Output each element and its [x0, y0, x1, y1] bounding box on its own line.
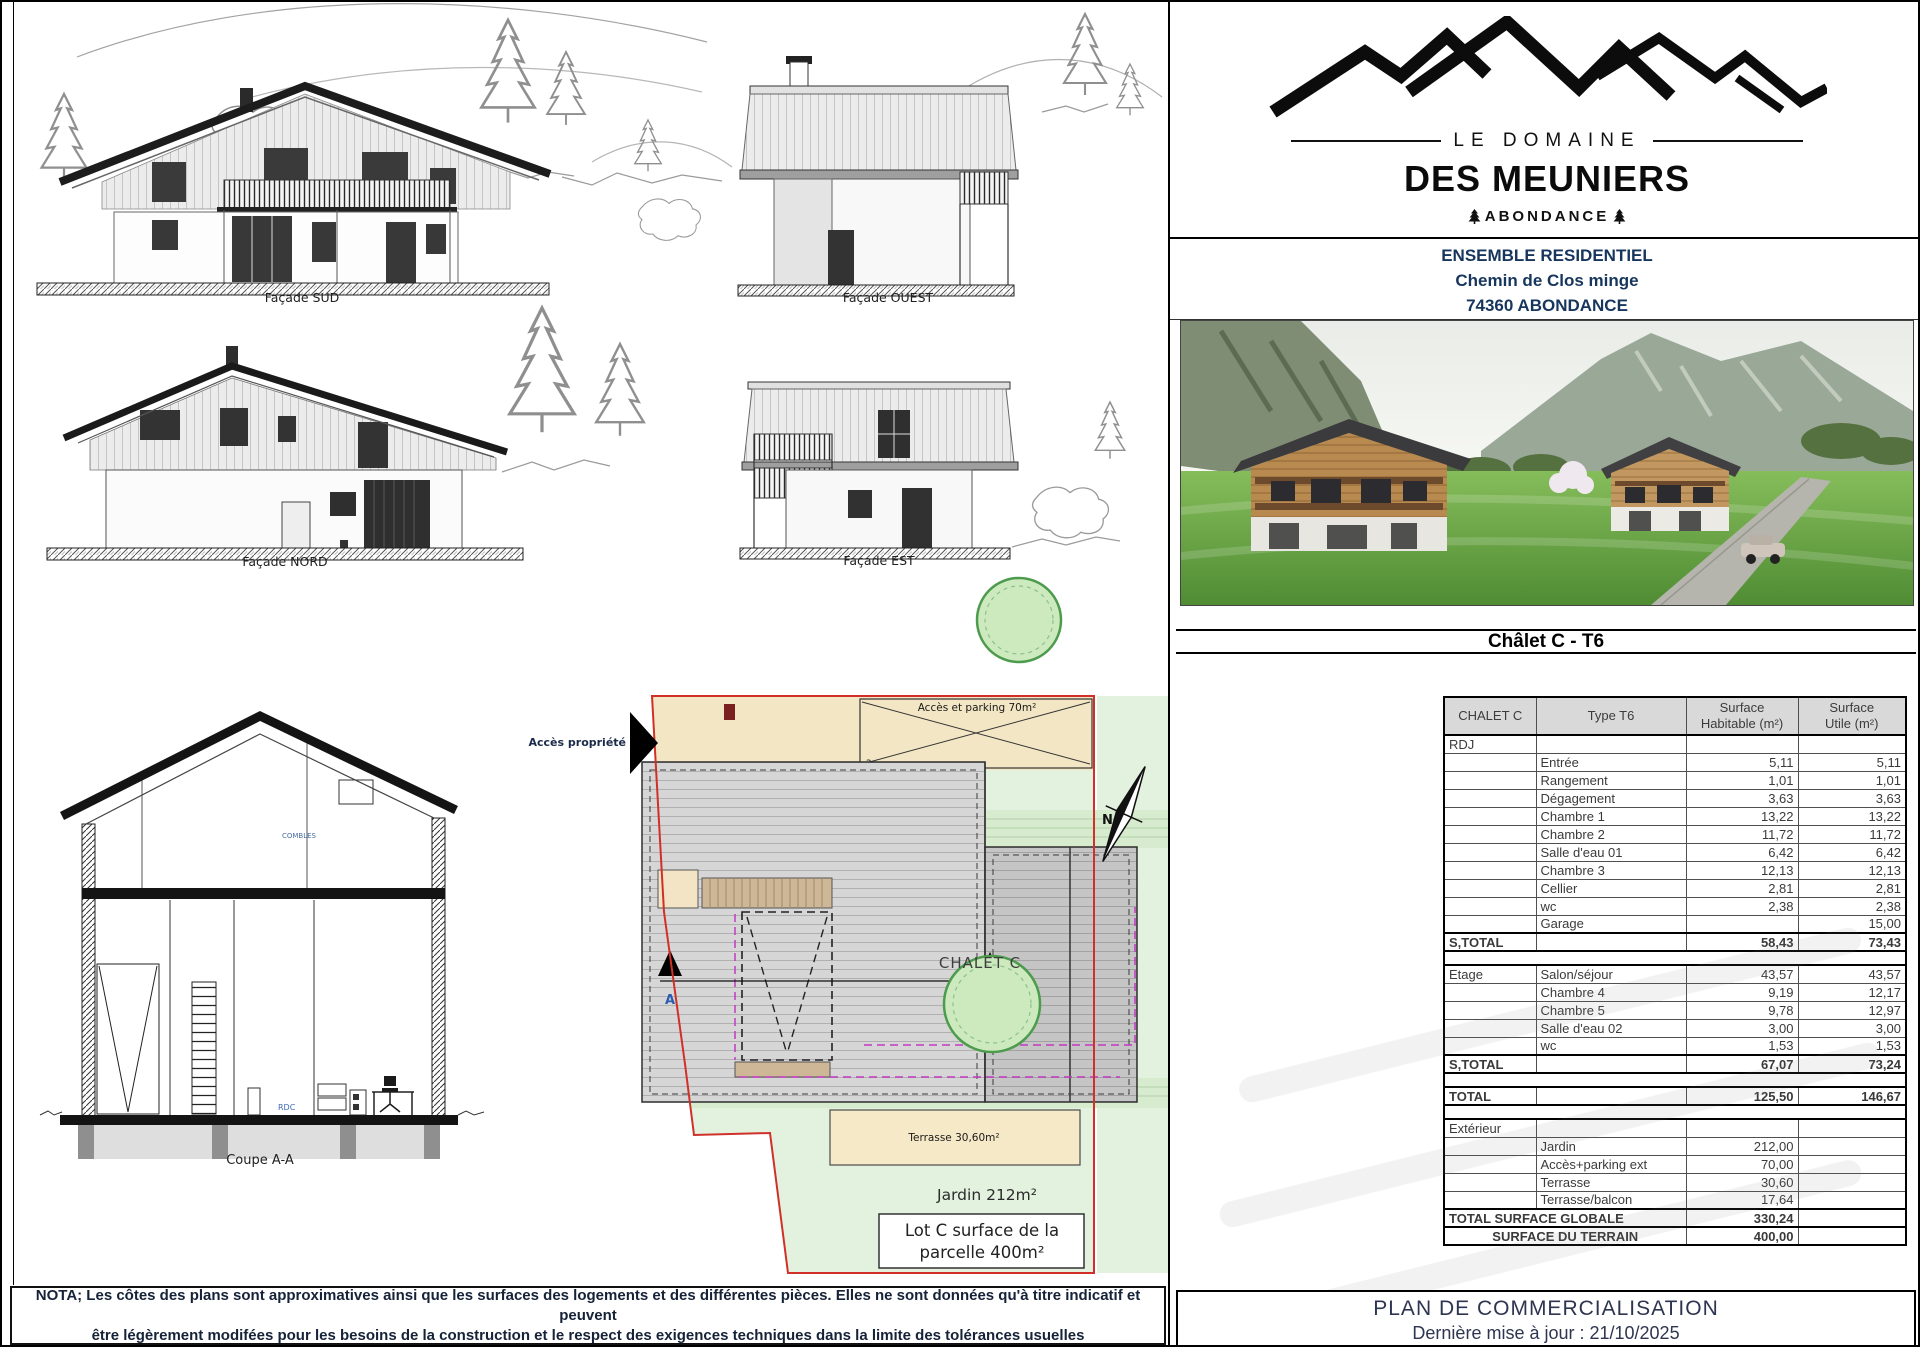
table-cell: 12,13 [1798, 861, 1906, 879]
chalet-c-plan-label: CHALET C [939, 954, 1021, 972]
table-cell: Chambre 1 [1536, 807, 1686, 825]
table-cell: Entrée [1536, 753, 1686, 771]
lot-line1: Lot C surface de la [905, 1221, 1059, 1240]
table-row: Terrasse/balcon17,64 [1444, 1191, 1906, 1209]
table-cell: SURFACE DU TERRAIN [1444, 1227, 1686, 1245]
table-cell: 212,00 [1686, 1137, 1798, 1155]
header-habitable: Surface Habitable (m²) [1686, 697, 1798, 735]
table-row: SURFACE DU TERRAIN400,00 [1444, 1227, 1906, 1245]
table-cell: 2,81 [1686, 879, 1798, 897]
table-cell: 1,53 [1686, 1037, 1798, 1055]
unit-title-bar: Châlet C - T6 [1176, 629, 1916, 654]
table-cell [1686, 915, 1798, 933]
table-cell [1444, 983, 1536, 1001]
table-row [1444, 1105, 1906, 1119]
title-panel: LE DOMAINE DES MEUNIERS ABONDANCE ENSEMB… [1168, 2, 1920, 1347]
facade-ouest-label: Façade OUEST [843, 290, 934, 305]
table-row: Entrée5,115,11 [1444, 753, 1906, 771]
surface-table-body: RDJEntrée5,115,11Rangement1,011,01Dégage… [1444, 735, 1906, 1245]
table-cell: 11,72 [1798, 825, 1906, 843]
table-row [1444, 1073, 1906, 1087]
facade-nord-drawing: Façade NORD [47, 346, 523, 569]
table-cell [1798, 1137, 1906, 1155]
table-row [1444, 951, 1906, 965]
section-marker-a-left: A [665, 993, 675, 1008]
brand-name: DES MEUNIERS [1170, 158, 1920, 200]
north-label: N [1102, 813, 1113, 828]
table-cell: S,TOTAL [1444, 1055, 1536, 1073]
table-row: Dégagement3,633,63 [1444, 789, 1906, 807]
nota-line1: NOTA; Les côtes des plans sont approxima… [12, 1286, 1164, 1326]
table-row: S,TOTAL67,0773,24 [1444, 1055, 1906, 1073]
site-plan: Accès et parking 70m² 2 [529, 578, 1171, 1273]
table-cell [1686, 735, 1798, 753]
table-cell: 73,24 [1798, 1055, 1906, 1073]
table-cell [1444, 843, 1536, 861]
table-cell: Chambre 4 [1536, 983, 1686, 1001]
table-cell [1686, 1119, 1798, 1137]
table-cell: 1,01 [1798, 771, 1906, 789]
table-cell: 3,00 [1798, 1019, 1906, 1037]
table-row: TOTAL125,50146,67 [1444, 1087, 1906, 1105]
table-cell: TOTAL [1444, 1087, 1536, 1105]
table-cell: 5,11 [1686, 753, 1798, 771]
table-cell: 2,81 [1798, 879, 1906, 897]
table-cell: 6,42 [1798, 843, 1906, 861]
table-cell: 12,17 [1798, 983, 1906, 1001]
table-row: Garage15,00 [1444, 915, 1906, 933]
table-cell: 1,53 [1798, 1037, 1906, 1055]
table-cell: 12,97 [1798, 1001, 1906, 1019]
table-row: TOTAL SURFACE GLOBALE330,24 [1444, 1209, 1906, 1227]
table-cell: 330,24 [1686, 1209, 1798, 1227]
table-cell [1444, 1105, 1906, 1119]
table-row: Chambre 49,1912,17 [1444, 983, 1906, 1001]
table-cell: 3,63 [1798, 789, 1906, 807]
table-cell [1798, 1209, 1906, 1227]
facade-nord-label: Façade NORD [242, 554, 327, 569]
table-cell: 70,00 [1686, 1155, 1798, 1173]
plan-footer: PLAN DE COMMERCIALISATION Dernière mise … [1176, 1290, 1916, 1347]
table-cell: 17,64 [1686, 1191, 1798, 1209]
table-cell [1798, 1191, 1906, 1209]
table-cell [1798, 1173, 1906, 1191]
table-cell: 73,43 [1798, 933, 1906, 951]
nota-box: NOTA; Les côtes des plans sont approxima… [10, 1286, 1166, 1345]
table-cell [1444, 1019, 1536, 1037]
table-cell [1536, 1055, 1686, 1073]
table-cell [1444, 1137, 1536, 1155]
table-cell [1444, 1073, 1906, 1087]
brand-rule-left [1291, 140, 1441, 142]
table-cell: 6,42 [1686, 843, 1798, 861]
table-cell: 9,78 [1686, 1001, 1798, 1019]
combles-label: COMBLES [282, 832, 317, 840]
drawing-area: Façade SUD Façade OUEST [2, 2, 1170, 1285]
table-cell: Salle d'eau 01 [1536, 843, 1686, 861]
table-cell: 3,63 [1686, 789, 1798, 807]
table-cell: 67,07 [1686, 1055, 1798, 1073]
table-row: Chambre 113,2213,22 [1444, 807, 1906, 825]
table-cell: Garage [1536, 915, 1686, 933]
table-cell [1444, 897, 1536, 915]
table-cell [1536, 933, 1686, 951]
table-cell: Terrasse [1536, 1173, 1686, 1191]
acces-parking-label: Accès et parking 70m² [918, 702, 1037, 714]
header-chalet: CHALET C [1444, 697, 1536, 735]
footer-title: PLAN DE COMMERCIALISATION [1178, 1297, 1914, 1321]
table-cell: 43,57 [1798, 965, 1906, 983]
table-cell [1798, 1227, 1906, 1245]
table-cell: Rangement [1536, 771, 1686, 789]
table-cell: Chambre 2 [1536, 825, 1686, 843]
project-photo [1180, 320, 1914, 606]
plan-sheet: Façade SUD Façade OUEST [0, 0, 1920, 1347]
address-line1: ENSEMBLE RESIDENTIEL [1170, 243, 1920, 268]
table-cell: 13,22 [1798, 807, 1906, 825]
table-cell [1798, 1155, 1906, 1173]
table-cell [1444, 807, 1536, 825]
brand-top-label: LE DOMAINE [1453, 130, 1640, 152]
table-row: Salle d'eau 016,426,42 [1444, 843, 1906, 861]
table-row: wc2,382,38 [1444, 897, 1906, 915]
table-row: RDJ [1444, 735, 1906, 753]
table-cell: 125,50 [1686, 1087, 1798, 1105]
coupe-label: Coupe A-A [226, 1153, 294, 1168]
fir-tree-icon [1613, 209, 1626, 224]
table-cell [1444, 1155, 1536, 1173]
table-cell: Accès+parking ext [1536, 1155, 1686, 1173]
table-cell [1444, 1001, 1536, 1019]
terrasse-label: Terrasse 30,60m² [907, 1132, 999, 1144]
table-cell [1444, 879, 1536, 897]
table-cell [1536, 1119, 1686, 1137]
table-cell: S,TOTAL [1444, 933, 1536, 951]
table-cell: 3,00 [1686, 1019, 1798, 1037]
table-cell: Chambre 3 [1536, 861, 1686, 879]
jardin-label: Jardin 212m² [936, 1186, 1037, 1204]
table-cell: Salon/séjour [1536, 965, 1686, 983]
table-cell: 9,19 [1686, 983, 1798, 1001]
table-row: Terrasse30,60 [1444, 1173, 1906, 1191]
table-cell: 58,43 [1686, 933, 1798, 951]
brand-location-label: ABONDANCE [1485, 208, 1610, 225]
table-cell: 15,00 [1798, 915, 1906, 933]
table-cell: 30,60 [1686, 1173, 1798, 1191]
table-row: Chambre 211,7211,72 [1444, 825, 1906, 843]
table-cell: 43,57 [1686, 965, 1798, 983]
table-cell: RDJ [1444, 735, 1536, 753]
brand-location-row: ABONDANCE [1170, 208, 1920, 225]
brand-rule-right [1653, 140, 1803, 142]
table-row: wc1,531,53 [1444, 1037, 1906, 1055]
footer-updated: Dernière mise à jour : 21/10/2025 [1178, 1323, 1914, 1344]
facade-sud-label: Façade SUD [265, 290, 340, 305]
table-row: Rangement1,011,01 [1444, 771, 1906, 789]
tree-circle-top [977, 578, 1061, 662]
table-cell: Terrasse/balcon [1536, 1191, 1686, 1209]
table-row: Cellier2,812,81 [1444, 879, 1906, 897]
table-row: Jardin212,00 [1444, 1137, 1906, 1155]
table-cell: Chambre 5 [1536, 1001, 1686, 1019]
table-row: Accès+parking ext70,00 [1444, 1155, 1906, 1173]
table-cell: 400,00 [1686, 1227, 1798, 1245]
table-cell [1444, 771, 1536, 789]
table-cell: 12,13 [1686, 861, 1798, 879]
header-type: Type T6 [1536, 697, 1686, 735]
fir-tree-icon [1468, 209, 1481, 224]
surface-table: CHALET C Type T6 Surface Habitable (m²) … [1443, 696, 1907, 1246]
table-cell: 5,11 [1798, 753, 1906, 771]
table-cell [1536, 735, 1686, 753]
lot-line2: parcelle 400m² [920, 1243, 1045, 1262]
table-cell: 146,67 [1798, 1087, 1906, 1105]
table-cell [1444, 753, 1536, 771]
header-utile: Surface Utile (m²) [1798, 697, 1906, 735]
acces-propriete-label: Accès propriété [529, 736, 627, 749]
table-cell [1444, 825, 1536, 843]
table-cell [1444, 1037, 1536, 1055]
table-cell [1444, 789, 1536, 807]
table-cell: Salle d'eau 02 [1536, 1019, 1686, 1037]
table-cell [1798, 1119, 1906, 1137]
mountain-logo-icon [1267, 16, 1827, 128]
table-cell: Etage [1444, 965, 1536, 983]
table-header-row: CHALET C Type T6 Surface Habitable (m²) … [1444, 697, 1906, 735]
table-row: Chambre 59,7812,97 [1444, 1001, 1906, 1019]
table-cell [1444, 1191, 1536, 1209]
facade-sud-drawing: Façade SUD [37, 86, 550, 305]
coupe-aa-drawing: COMBLES RDC Coupe A-A [40, 716, 484, 1168]
table-cell: TOTAL SURFACE GLOBALE [1444, 1209, 1686, 1227]
nota-line2: être légèrement modifées pour les besoin… [12, 1326, 1164, 1346]
table-row: S,TOTAL58,4373,43 [1444, 933, 1906, 951]
table-cell: 11,72 [1686, 825, 1798, 843]
table-cell: wc [1536, 1037, 1686, 1055]
table-cell: Cellier [1536, 879, 1686, 897]
brand-block: LE DOMAINE DES MEUNIERS ABONDANCE [1170, 2, 1920, 239]
table-row: Extérieur [1444, 1119, 1906, 1137]
table-cell: 2,38 [1686, 897, 1798, 915]
table-cell: Dégagement [1536, 789, 1686, 807]
address-line2: Chemin de Clos minge [1170, 268, 1920, 293]
table-cell [1444, 951, 1906, 965]
facade-est-drawing: Façade EST [740, 382, 1018, 568]
table-row: Chambre 312,1312,13 [1444, 861, 1906, 879]
facade-ouest-drawing: Façade OUEST [738, 56, 1018, 305]
address-line3: 74360 ABONDANCE [1170, 293, 1920, 318]
table-cell: Extérieur [1444, 1119, 1536, 1137]
table-cell: wc [1536, 897, 1686, 915]
address-block: ENSEMBLE RESIDENTIEL Chemin de Clos ming… [1170, 239, 1920, 320]
table-row: Salle d'eau 023,003,00 [1444, 1019, 1906, 1037]
table-cell [1536, 1087, 1686, 1105]
table-cell: Jardin [1536, 1137, 1686, 1155]
table-cell [1798, 735, 1906, 753]
rdc-label: RDC [278, 1103, 296, 1112]
facade-est-label: Façade EST [843, 553, 915, 568]
table-cell [1444, 861, 1536, 879]
table-row: EtageSalon/séjour43,5743,57 [1444, 965, 1906, 983]
table-cell: 13,22 [1686, 807, 1798, 825]
table-cell [1444, 915, 1536, 933]
table-cell [1444, 1173, 1536, 1191]
table-cell: 1,01 [1686, 771, 1798, 789]
brand-top-row: LE DOMAINE [1170, 130, 1920, 152]
table-cell: 2,38 [1798, 897, 1906, 915]
unit-title: Châlet C - T6 [1488, 631, 1604, 653]
